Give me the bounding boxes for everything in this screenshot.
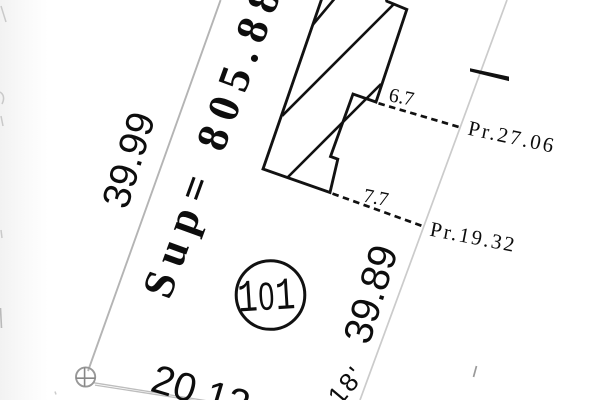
- svg-text:6.7: 6.7: [387, 84, 416, 110]
- svg-text:Pr.27.06: Pr.27.06: [466, 116, 558, 158]
- svg-text:101: 101: [236, 270, 297, 325]
- svg-text:7.7: 7.7: [362, 185, 391, 211]
- svg-text:18': 18': [322, 359, 372, 400]
- svg-text:39.99: 39.99: [94, 107, 164, 213]
- svg-text:Pr.19.32: Pr.19.32: [428, 217, 519, 257]
- svg-text:39.89: 39.89: [336, 240, 407, 349]
- svg-text:20.12: 20.12: [146, 357, 254, 400]
